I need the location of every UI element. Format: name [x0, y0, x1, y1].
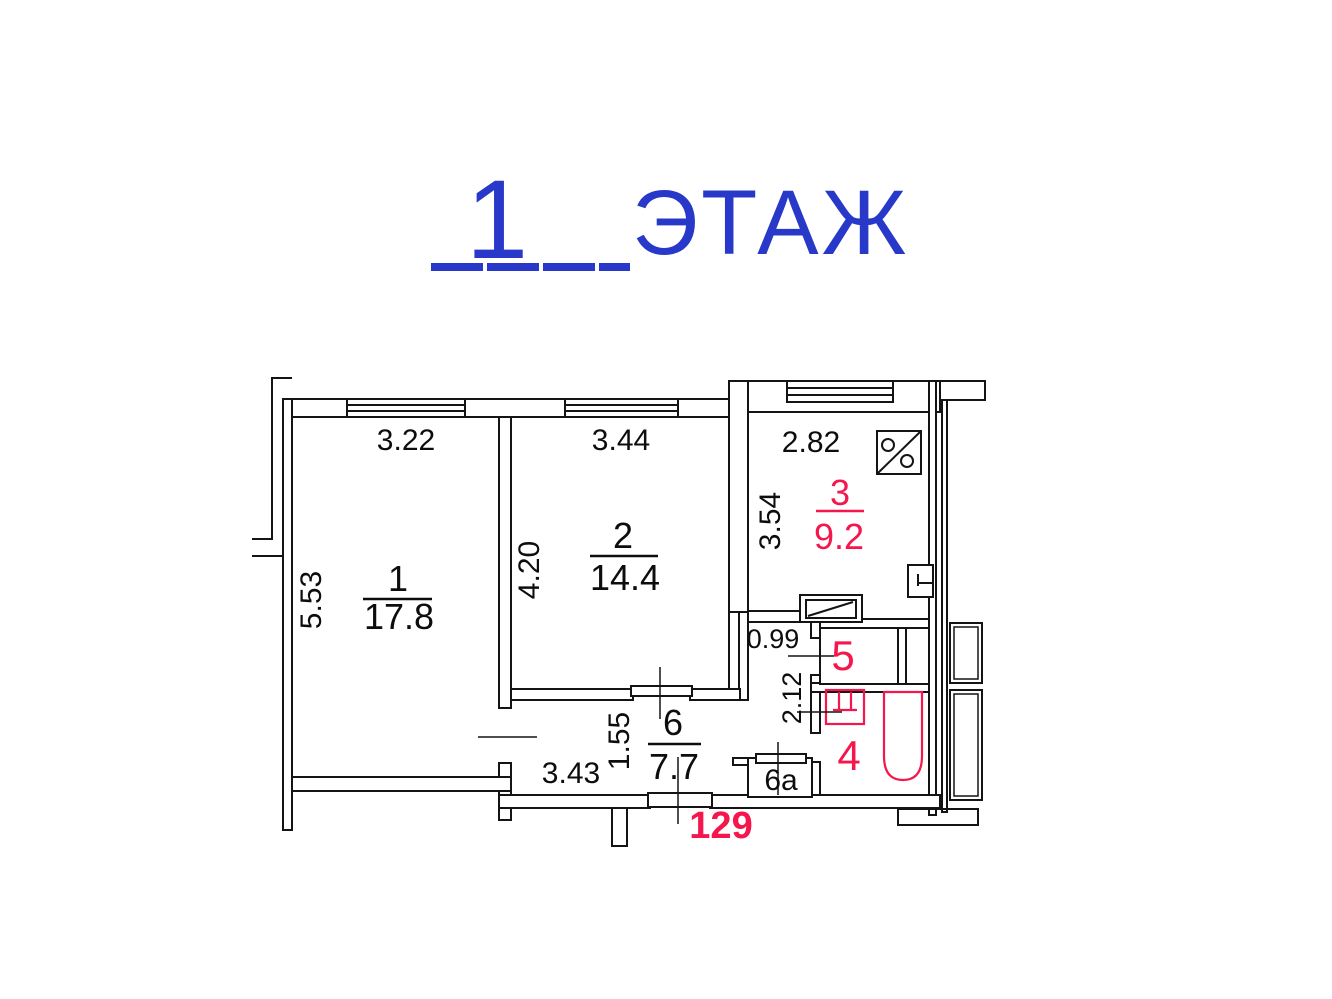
room3-width-dim: 2.82 — [782, 426, 840, 459]
electric-panel-icon — [908, 565, 933, 597]
room-1: 3.22 5.53 1 17.8 — [295, 424, 435, 637]
title-underline — [431, 263, 630, 271]
hall-width-dim: 0.99 — [747, 624, 800, 654]
room-5: 0.99 5 — [747, 624, 855, 679]
window-icon-room2 — [565, 399, 678, 417]
floorplan-page: 1 ЭТАЖ — [0, 0, 1332, 999]
room3-area: 9.2 — [814, 516, 864, 557]
room1-number: 1 — [388, 558, 408, 599]
room2-area: 14.4 — [590, 557, 660, 598]
room3-height-dim: 3.54 — [754, 492, 787, 550]
room1-width-dim: 3.22 — [377, 424, 435, 457]
room6-number: 6 — [663, 702, 683, 743]
room1-area: 17.8 — [364, 596, 434, 637]
door-leaf-room2 — [631, 686, 692, 696]
window-icon-room3 — [787, 381, 893, 402]
room2-number: 2 — [613, 515, 633, 556]
toilet-icon — [826, 690, 864, 724]
vent-box-icon — [800, 595, 862, 622]
room4-height-dim: 2.12 — [777, 672, 807, 725]
room6a-number: 6a — [764, 764, 798, 797]
stove-icon — [877, 431, 921, 474]
room6-area: 7.7 — [649, 746, 699, 787]
window-icon-room1 — [347, 399, 465, 417]
room3-number: 3 — [830, 472, 850, 513]
door-leaf-6a — [756, 754, 806, 763]
neighbor-unit-walls — [898, 400, 982, 825]
room2-width-dim: 3.44 — [592, 424, 650, 457]
room2-height-dim: 4.20 — [513, 541, 546, 599]
room-6: 6 7.7 3.43 1.55 — [542, 702, 701, 790]
floor-word: ЭТАЖ — [632, 172, 910, 274]
room-3: 2.82 3.54 3 9.2 — [754, 426, 864, 557]
room5-number: 5 — [831, 632, 854, 679]
room4-number: 4 — [837, 732, 860, 779]
floorplan-drawing: 1 ЭТАЖ — [0, 0, 1332, 999]
room6-width-dim: 3.43 — [542, 757, 600, 790]
room6-height-dim: 1.55 — [603, 712, 636, 770]
apartment-number: 129 — [689, 805, 752, 847]
bathtub-icon — [884, 692, 922, 780]
floor-title: 1 ЭТАЖ — [431, 157, 910, 282]
room1-height-dim: 5.53 — [295, 571, 328, 629]
room-2: 3.44 4.20 2 14.4 — [513, 424, 660, 599]
